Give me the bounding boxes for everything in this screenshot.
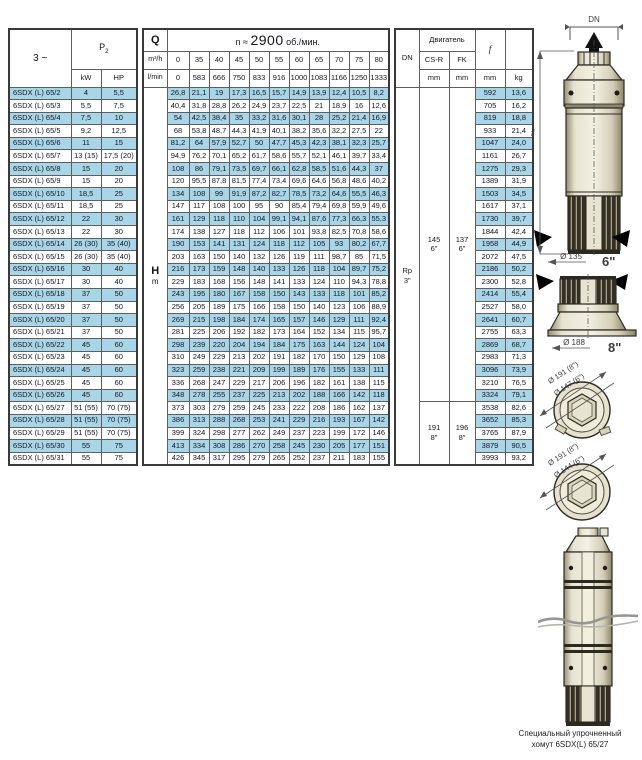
head-value-cell: 69,7 — [249, 163, 269, 176]
head-value-cell: 112 — [289, 238, 309, 251]
csr-header: CS-R — [419, 51, 449, 69]
head-value-cell: 118 — [209, 213, 229, 226]
head-value-cell: 26,8 — [167, 87, 189, 100]
head-value-cell: 140 — [229, 251, 249, 264]
flow-col: 40 — [209, 51, 229, 69]
speed-header: n ≈ 2900 об./мин. — [167, 29, 389, 51]
kw-cell: 37 — [71, 289, 101, 302]
head-value-cell: 348 — [167, 389, 189, 402]
head-value-cell: 168 — [209, 276, 229, 289]
f-cell: 1275 — [475, 163, 505, 176]
table-row: 386313288268253241229216193167142 — [143, 414, 389, 427]
head-value-cell: 124 — [309, 276, 329, 289]
model-cell: 6SDX (L) 65/2 — [9, 87, 71, 100]
model-cell: 6SDX (L) 65/8 — [9, 163, 71, 176]
flow-col: 60 — [289, 51, 309, 69]
head-value-cell: 399 — [167, 427, 189, 440]
table-row: 16112911811010499,194,187,677,366,355,3 — [143, 213, 389, 226]
p2-header: P2 — [71, 29, 137, 69]
kw-cell: 26 (30) — [71, 251, 101, 264]
head-value-cell: 129 — [349, 351, 369, 364]
table-row: 6SDX (L) 65/59,212,5 — [9, 125, 137, 138]
kw-cell: 45 — [71, 351, 101, 364]
head-value-cell: 81,2 — [167, 137, 189, 150]
head-value-cell: 88,9 — [369, 301, 389, 314]
head-value-cell: 192 — [229, 326, 249, 339]
head-value-cell: 98,7 — [329, 251, 349, 264]
head-value-cell: 345 — [189, 452, 209, 465]
pump-6inch-drawing: DN f Ø 135 6" — [524, 10, 640, 272]
head-value-cell: 111 — [369, 364, 389, 377]
flow-col: 833 — [249, 69, 269, 87]
head-value-cell: 40,1 — [269, 125, 289, 138]
f-cell: 933 — [475, 125, 505, 138]
model-cell: 6SDX (L) 65/3 — [9, 100, 71, 113]
f-cell: 819 — [475, 112, 505, 125]
csr-6-cell: 1456" — [419, 87, 449, 402]
table-row: 1088679,173,569,766,162,858,551,644,337 — [143, 163, 389, 176]
f-cell: 1161 — [475, 150, 505, 163]
model-cell: 6SDX (L) 65/31 — [9, 452, 71, 465]
head-value-cell: 57,9 — [209, 137, 229, 150]
head-value-cell: 237 — [289, 427, 309, 440]
size-6-label: 6" — [602, 254, 615, 269]
q-unit-lmin: l/min — [143, 69, 167, 87]
head-value-cell: 118 — [329, 289, 349, 302]
head-value-cell: 65,2 — [229, 150, 249, 163]
head-value-cell: 265 — [269, 452, 289, 465]
head-value-cell: 206 — [209, 326, 229, 339]
table-row: 40,431,828,826,224,923,722,52118,91612,6 — [143, 100, 389, 113]
table-row: 6SDX (L) 65/35,57,5 — [9, 100, 137, 113]
head-value-cell: 48,7 — [209, 125, 229, 138]
kw-cell: 37 — [71, 314, 101, 327]
head-value-cell: 132 — [249, 251, 269, 264]
model-cell: 6SDX (L) 65/23 — [9, 351, 71, 364]
size-8-label: 8" — [608, 340, 621, 355]
hp-cell: 60 — [101, 339, 137, 352]
head-value-cell: 64,6 — [329, 188, 349, 201]
kw-cell: 45 — [71, 339, 101, 352]
head-value-cell: 108 — [369, 351, 389, 364]
head-value-cell: 17,3 — [229, 87, 249, 100]
table-row: 413334308286270258245230205177151 — [143, 440, 389, 453]
head-value-cell: 87,8 — [209, 175, 229, 188]
head-value-cell: 104 — [329, 263, 349, 276]
table-row: 22918316815614814113312411094,378,8 — [143, 276, 389, 289]
head-value-cell: 69,8 — [329, 200, 349, 213]
head-value-cell: 101 — [349, 289, 369, 302]
head-value-cell: 237 — [309, 452, 329, 465]
intake-arrow-left-icon — [536, 274, 554, 290]
table-row: Rp3"1456"1376"59213,6 — [395, 87, 533, 100]
head-value-cell: 373 — [167, 402, 189, 415]
head-value-cell: 216 — [167, 263, 189, 276]
hp-cell: 60 — [101, 351, 137, 364]
head-value-cell: 93 — [329, 238, 349, 251]
head-value-cell: 229 — [289, 414, 309, 427]
head-value-cell: 110 — [329, 276, 349, 289]
head-value-cell: 119 — [289, 251, 309, 264]
head-value-cell: 99 — [209, 188, 229, 201]
head-value-cell: 159 — [209, 263, 229, 276]
kw-cell: 15 — [71, 175, 101, 188]
head-value-cell: 220 — [209, 339, 229, 352]
kw-cell: 55 — [71, 440, 101, 453]
table-row: 6SDX (L) 65/713 (15)17,5 (20) — [9, 150, 137, 163]
head-value-cell: 183 — [349, 452, 369, 465]
head-value-cell: 308 — [209, 440, 229, 453]
head-value-cell: 184 — [269, 339, 289, 352]
head-value-cell: 47,7 — [269, 137, 289, 150]
head-value-cell: 25,2 — [329, 112, 349, 125]
hp-cell: 50 — [101, 301, 137, 314]
head-value-cell: 8,2 — [369, 87, 389, 100]
head-unit-cell: Hm — [143, 87, 167, 465]
head-value-cell: 303 — [189, 402, 209, 415]
table-row: 6SDX (L) 65/315575 — [9, 452, 137, 465]
head-value-cell: 14,9 — [289, 87, 309, 100]
f-cell: 3324 — [475, 389, 505, 402]
table-row: Hm26,821,11917,316,515,714,913,912,410,5… — [143, 87, 389, 100]
table-row: 6SDX (L) 65/305575 — [9, 440, 137, 453]
head-value-cell: 238 — [209, 364, 229, 377]
table-row: 1901531411311241181121059380,267,7 — [143, 238, 389, 251]
table-row: 12095,587,881,577,473,469,664,656,848,64… — [143, 175, 389, 188]
head-value-cell: 166 — [249, 301, 269, 314]
head-value-cell: 41,9 — [249, 125, 269, 138]
head-value-cell: 95,7 — [369, 326, 389, 339]
table-row: 26921519818417416515714612911192,4 — [143, 314, 389, 327]
head-value-cell: 16,5 — [249, 87, 269, 100]
head-value-cell: 108 — [209, 200, 229, 213]
head-value-cell: 31,8 — [189, 100, 209, 113]
head-value-cell: 186 — [329, 402, 349, 415]
head-value-cell: 106 — [269, 226, 289, 239]
head-value-cell: 32,2 — [329, 125, 349, 138]
head-value-cell: 55,5 — [349, 188, 369, 201]
model-cell: 6SDX (L) 65/26 — [9, 389, 71, 402]
head-value-cell: 27,5 — [349, 125, 369, 138]
head-value-cell: 94,1 — [289, 213, 309, 226]
head-value-cell: 141 — [269, 276, 289, 289]
f-cell: 2186 — [475, 263, 505, 276]
head-value-cell: 44,3 — [349, 163, 369, 176]
head-value-cell: 108 — [189, 188, 209, 201]
table-row: 336268247229217206196182161138115 — [143, 377, 389, 390]
kw-cell: 26 (30) — [71, 238, 101, 251]
table-row: 28122520619218217316415213411595,7 — [143, 326, 389, 339]
head-value-cell: 183 — [189, 276, 209, 289]
model-cell: 6SDX (L) 65/27 — [9, 402, 71, 415]
head-value-cell: 58,6 — [369, 226, 389, 239]
hp-header: HP — [101, 69, 137, 87]
q-unit-m3h: m³/h — [143, 51, 167, 69]
model-cell: 6SDX (L) 65/16 — [9, 263, 71, 276]
head-value-cell: 62,8 — [289, 163, 309, 176]
head-value-cell: 161 — [167, 213, 189, 226]
model-power-table: 3 ~ P2 kW HP 6SDX (L) 65/245,56SDX (L) 6… — [8, 28, 138, 466]
head-value-cell: 167 — [349, 414, 369, 427]
head-value-cell: 129 — [189, 213, 209, 226]
head-value-cell: 413 — [167, 440, 189, 453]
table-row: 6SDX (L) 65/264560 — [9, 389, 137, 402]
head-value-cell: 155 — [369, 452, 389, 465]
head-value-cell: 85,2 — [369, 289, 389, 302]
head-value-cell: 323 — [167, 364, 189, 377]
flow-col: 0 — [167, 51, 189, 69]
head-value-cell: 99,1 — [269, 213, 289, 226]
table-row: 6SDX (L) 65/132230 — [9, 226, 137, 239]
head-value-cell: 18,9 — [329, 100, 349, 113]
head-value-cell: 175 — [229, 301, 249, 314]
head-value-cell: 118 — [309, 263, 329, 276]
kw-cell: 22 — [71, 213, 101, 226]
head-value-cell: 64,6 — [309, 175, 329, 188]
f-cell: 1958 — [475, 238, 505, 251]
f-cell: 2300 — [475, 276, 505, 289]
kg-cell: 82,6 — [505, 402, 533, 415]
head-value-cell: 46,1 — [329, 150, 349, 163]
kw-cell: 37 — [71, 301, 101, 314]
head-value-cell: 198 — [209, 314, 229, 327]
table-row: 310249229213202191182170150129108 — [143, 351, 389, 364]
head-value-cell: 203 — [167, 251, 189, 264]
dimensions-table: DN Двигатель f CS-R FK mm mm mm kg Rp3"1… — [394, 28, 534, 466]
kw-cell: 15 — [71, 163, 101, 176]
head-value-cell: 10,5 — [349, 87, 369, 100]
head-value-cell: 225 — [249, 389, 269, 402]
head-value-cell: 77,4 — [249, 175, 269, 188]
head-value-cell: 38,4 — [209, 112, 229, 125]
head-value-cell: 87,2 — [249, 188, 269, 201]
dimensions-header: DN Двигатель f CS-R FK mm mm mm kg — [395, 29, 533, 87]
kw-cell: 30 — [71, 276, 101, 289]
table-row: 6SDX (L) 65/234560 — [9, 351, 137, 364]
head-value-cell: 173 — [269, 326, 289, 339]
table-row: 6SDX (L) 65/47,510 — [9, 112, 137, 125]
table-row: 6SDX (L) 65/244560 — [9, 364, 137, 377]
head-value-cell: 259 — [189, 364, 209, 377]
flow-col: 55 — [269, 51, 289, 69]
f-cell: 3765 — [475, 427, 505, 440]
table-row: 6SDX (L) 65/203750 — [9, 314, 137, 327]
head-value-cell: 173 — [189, 263, 209, 276]
head-value-cell: 241 — [269, 414, 289, 427]
head-value-cell: 73,5 — [229, 163, 249, 176]
table-row: 6SDX (L) 65/245,5 — [9, 87, 137, 100]
catalog-page: { "header": { "phase": "3 ~", "p2_base":… — [0, 0, 642, 760]
head-value-cell: 76,2 — [189, 150, 209, 163]
f-dim-label: f — [531, 128, 535, 138]
head-value-cell: 22 — [369, 125, 389, 138]
head-value-cell: 249 — [189, 351, 209, 364]
head-value-cell: 77,3 — [329, 213, 349, 226]
flow-col: 0 — [167, 69, 189, 87]
head-value-cell: 255 — [209, 389, 229, 402]
head-value-cell: 258 — [269, 440, 289, 453]
head-value-cell: 75,2 — [369, 263, 389, 276]
head-value-cell: 155 — [329, 364, 349, 377]
table-row: 6853,848,744,341,940,138,235,632,227,522 — [143, 125, 389, 138]
head-value-cell: 48,6 — [349, 175, 369, 188]
head-value-cell: 222 — [289, 402, 309, 415]
table-row: 323259238221209199189176155133111 — [143, 364, 389, 377]
head-value-cell: 67,7 — [369, 238, 389, 251]
table-row: 399324298277262249237223199172146 — [143, 427, 389, 440]
head-value-cell: 184 — [229, 314, 249, 327]
head-value-cell: 87,6 — [309, 213, 329, 226]
dia-188-label: Ø 188 — [563, 338, 585, 347]
head-value-cell: 199 — [269, 364, 289, 377]
head-value-cell: 191 — [269, 351, 289, 364]
clamp-caption: Специальный упрочненный хомут 6SDX(L) 65… — [500, 729, 640, 751]
head-value-cell: 189 — [289, 364, 309, 377]
model-cell: 6SDX (L) 65/14 — [9, 238, 71, 251]
head-value-cell: 277 — [229, 427, 249, 440]
dim-table-body: Rp3"1456"1376"59213,670516,281918,893321… — [395, 87, 533, 465]
hp-cell: 35 (40) — [101, 251, 137, 264]
head-value-cell: 209 — [249, 364, 269, 377]
table-row: 6SDX (L) 65/122230 — [9, 213, 137, 226]
kg-cell: 76,5 — [505, 377, 533, 390]
head-value-cell: 33,4 — [369, 150, 389, 163]
head-value-cell: 25,7 — [369, 137, 389, 150]
head-value-cell: 270 — [249, 440, 269, 453]
head-value-cell: 298 — [167, 339, 189, 352]
head-value-cell: 164 — [289, 326, 309, 339]
table-row: 6SDX (L) 65/193750 — [9, 301, 137, 314]
head-value-cell: 28 — [309, 112, 329, 125]
table-row: 6SDX (L) 65/173040 — [9, 276, 137, 289]
flow-col: 666 — [209, 69, 229, 87]
kw-cell: 45 — [71, 389, 101, 402]
head-value-cell: 16 — [349, 100, 369, 113]
head-value-cell: 55,3 — [369, 213, 389, 226]
dn-header: DN — [395, 29, 419, 87]
table-row: 24319518016715815014313311810185,2 — [143, 289, 389, 302]
table-row: 373303279259245233222208186162137 — [143, 402, 389, 415]
head-value-cell: 120 — [167, 175, 189, 188]
head-value-cell: 245 — [249, 402, 269, 415]
head-value-cell: 217 — [249, 377, 269, 390]
hp-cell: 12,5 — [101, 125, 137, 138]
head-value-cell: 189 — [209, 301, 229, 314]
head-value-cell: 148 — [229, 263, 249, 276]
head-value-cell: 50 — [249, 137, 269, 150]
kw-header: kW — [71, 69, 101, 87]
head-value-cell: 133 — [289, 276, 309, 289]
head-value-cell: 202 — [289, 389, 309, 402]
hp-cell: 25 — [101, 188, 137, 201]
head-value-cell: 28,8 — [209, 100, 229, 113]
table-row: 6SDX (L) 65/91520 — [9, 175, 137, 188]
head-value-cell: 131 — [229, 238, 249, 251]
head-value-cell: 31,6 — [269, 112, 289, 125]
kw-cell: 4 — [71, 87, 101, 100]
head-value-cell: 215 — [189, 314, 209, 327]
pump-8inch-drawing: Ø 188 8" — [524, 272, 640, 356]
model-cell: 6SDX (L) 65/11 — [9, 200, 71, 213]
head-value-cell: 38,1 — [329, 137, 349, 150]
hp-cell: 20 — [101, 175, 137, 188]
f-cell: 1844 — [475, 226, 505, 239]
f-cell: 3652 — [475, 414, 505, 427]
head-value-cell: 133 — [309, 289, 329, 302]
head-value-cell: 52,1 — [309, 150, 329, 163]
flow-col: 1166 — [329, 69, 349, 87]
head-value-cell: 12,6 — [369, 100, 389, 113]
model-cell: 6SDX (L) 65/6 — [9, 137, 71, 150]
f-cell: 2983 — [475, 351, 505, 364]
model-cell: 6SDX (L) 65/17 — [9, 276, 71, 289]
head-value-cell: 124 — [349, 339, 369, 352]
kw-cell: 5,5 — [71, 100, 101, 113]
table-row: 6SDX (L) 65/2851 (55)70 (75) — [9, 414, 137, 427]
intake-arrow-left-icon — [534, 230, 552, 247]
hp-cell: 60 — [101, 389, 137, 402]
head-value-cell: 144 — [329, 339, 349, 352]
head-value-cell: 56,8 — [329, 175, 349, 188]
head-value-cell: 225 — [189, 326, 209, 339]
head-value-cell: 249 — [269, 427, 289, 440]
head-value-cell: 15,7 — [269, 87, 289, 100]
fk-8-cell: 1968" — [449, 402, 475, 465]
table-row: 1341089991,987,282,778,573,264,655,546,3 — [143, 188, 389, 201]
kg-cell: 90,5 — [505, 440, 533, 453]
head-value-cell: 78,8 — [369, 276, 389, 289]
head-value-cell: 295 — [229, 452, 249, 465]
f-cell: 1730 — [475, 213, 505, 226]
head-value-cell: 134 — [167, 188, 189, 201]
head-value-cell: 166 — [329, 389, 349, 402]
head-value-cell: 89,7 — [349, 263, 369, 276]
kg-cell: 73,9 — [505, 364, 533, 377]
head-value-cell: 37 — [369, 163, 389, 176]
head-value-cell: 170 — [309, 351, 329, 364]
head-value-cell: 278 — [189, 389, 209, 402]
f-cell: 1617 — [475, 200, 505, 213]
head-value-cell: 213 — [269, 389, 289, 402]
head-value-cell: 202 — [249, 351, 269, 364]
hp-cell: 30 — [101, 213, 137, 226]
head-value-cell: 66,3 — [349, 213, 369, 226]
head-value-cell: 81,5 — [229, 175, 249, 188]
head-value-cell: 281 — [167, 326, 189, 339]
head-value-cell: 51,6 — [329, 163, 349, 176]
head-value-cell: 21,1 — [189, 87, 209, 100]
head-value-cell: 239 — [189, 339, 209, 352]
head-value-cell: 22,5 — [289, 100, 309, 113]
head-value-cell: 90 — [269, 200, 289, 213]
head-value-cell: 172 — [349, 427, 369, 440]
hp-cell: 10 — [101, 112, 137, 125]
table-row: 6SDX (L) 65/224560 — [9, 339, 137, 352]
kw-cell: 11 — [71, 137, 101, 150]
head-value-cell: 313 — [189, 414, 209, 427]
left-table-body: 6SDX (L) 65/245,56SDX (L) 65/35,57,56SDX… — [9, 87, 137, 465]
head-value-cell: 79,1 — [209, 163, 229, 176]
table-row: 6SDX (L) 65/183750 — [9, 289, 137, 302]
f-cell: 1047 — [475, 137, 505, 150]
model-cell: 6SDX (L) 65/29 — [9, 427, 71, 440]
head-value-cell: 68 — [167, 125, 189, 138]
dn-value-cell: Rp3" — [395, 87, 419, 465]
hp-cell: 17,5 (20) — [101, 150, 137, 163]
head-value-cell: 142 — [349, 389, 369, 402]
head-value-cell: 140 — [309, 301, 329, 314]
head-value-cell: 79,4 — [309, 200, 329, 213]
